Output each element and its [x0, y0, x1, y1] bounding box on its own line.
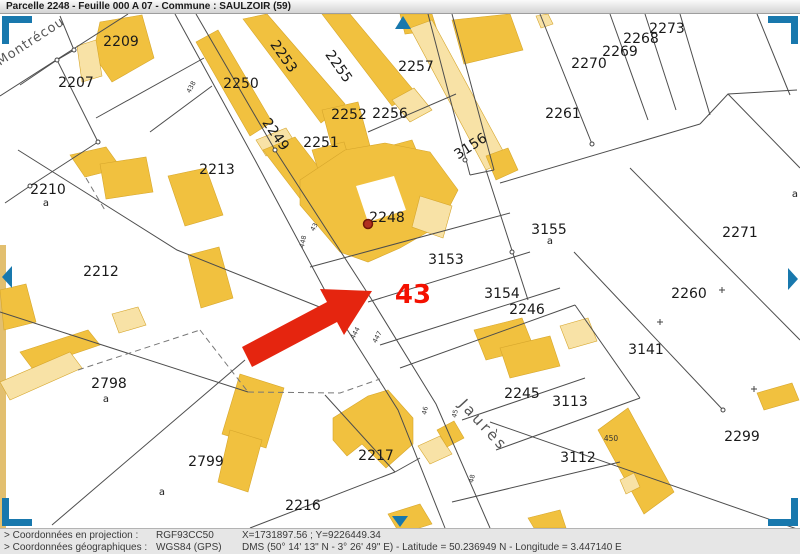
parcel-label: 3112 [560, 450, 596, 466]
boundary-node [96, 140, 100, 144]
status-row-geographic: > Coordonnées géographiques : WGS84 (GPS… [0, 542, 800, 554]
status-row-projection: > Coordonnées en projection : RGF93CC50 … [0, 530, 800, 542]
building [100, 157, 153, 199]
projection-coordinates: X=1731897.56 ; Y=9226449.34 [242, 530, 800, 542]
projection-label: > Coordonnées en projection : [0, 530, 156, 542]
parcel-label: 2250 [223, 76, 259, 92]
parcel-sub-letter: a [792, 189, 798, 200]
parcel-label: 2252 [331, 107, 367, 123]
parcel-label: 2798 [91, 376, 127, 392]
parcel-label: 2245 [504, 386, 540, 402]
parcel-sub-letter: a [103, 394, 109, 405]
boundary-node [55, 58, 59, 62]
geographic-coordinates: DMS (50° 14' 13" N - 3° 26' 49" E) - Lat… [242, 542, 800, 554]
parcel-label: 3153 [428, 252, 464, 268]
boundary-node [510, 250, 514, 254]
parcel-label: 3113 [552, 394, 588, 410]
road-number: 45 [450, 409, 460, 419]
parcel-sub-letter: a [547, 236, 553, 247]
parcel-label: 2271 [722, 225, 758, 241]
parcel-label: 2260 [671, 286, 707, 302]
geographic-system: WGS84 (GPS) [156, 542, 242, 554]
parcel-label: 2209 [103, 34, 139, 50]
parcel-label: 2212 [83, 264, 119, 280]
parcel-sub-letter: a [43, 198, 49, 209]
map-canvas[interactable]: 2209 2207 2210 2212 2213 2250 2253 2255 … [0, 0, 800, 554]
road-number: 46 [420, 406, 430, 416]
header-bar: Parcelle 2248 - Feuille 000 A 07 - Commu… [0, 0, 800, 14]
cadastre-map-svg: 2209 2207 2210 2212 2213 2250 2253 2255 … [0, 0, 800, 554]
boundary-node [590, 142, 594, 146]
boundary-node [72, 48, 76, 52]
projection-system: RGF93CC50 [156, 530, 242, 542]
parcel-label: 2207 [58, 75, 94, 91]
parcel-label: 2216 [285, 498, 321, 514]
parcel-label: 2213 [199, 162, 235, 178]
parcel-label: 2257 [398, 59, 434, 75]
parcel-label: 2299 [724, 429, 760, 445]
geographic-label: > Coordonnées géographiques : [0, 542, 156, 554]
parcel-label: 2799 [188, 454, 224, 470]
parcel-label: 3154 [484, 286, 520, 302]
parcel-label: 2217 [358, 448, 394, 464]
parcel-marker-dot [364, 220, 373, 229]
parcel-label: 2261 [545, 106, 581, 122]
parcel-label: 2256 [372, 106, 408, 122]
parcel-label: 2273 [649, 21, 685, 37]
building-number: 450 [604, 434, 619, 443]
parcel-label-2248: 2248 [369, 210, 405, 226]
parcel-label: 2210 [30, 182, 66, 198]
road-number: 48 [467, 474, 477, 484]
parcel-label: 2246 [509, 302, 545, 318]
status-bar: > Coordonnées en projection : RGF93CC50 … [0, 528, 800, 554]
page-title: Parcelle 2248 - Feuille 000 A 07 - Commu… [6, 1, 291, 12]
parcel-label: 3141 [628, 342, 664, 358]
boundary-node [721, 408, 725, 412]
parcel-label: 2251 [303, 135, 339, 151]
highlighted-parcel-number: 43 [395, 280, 431, 310]
parcel-sub-letter: a [159, 487, 165, 498]
